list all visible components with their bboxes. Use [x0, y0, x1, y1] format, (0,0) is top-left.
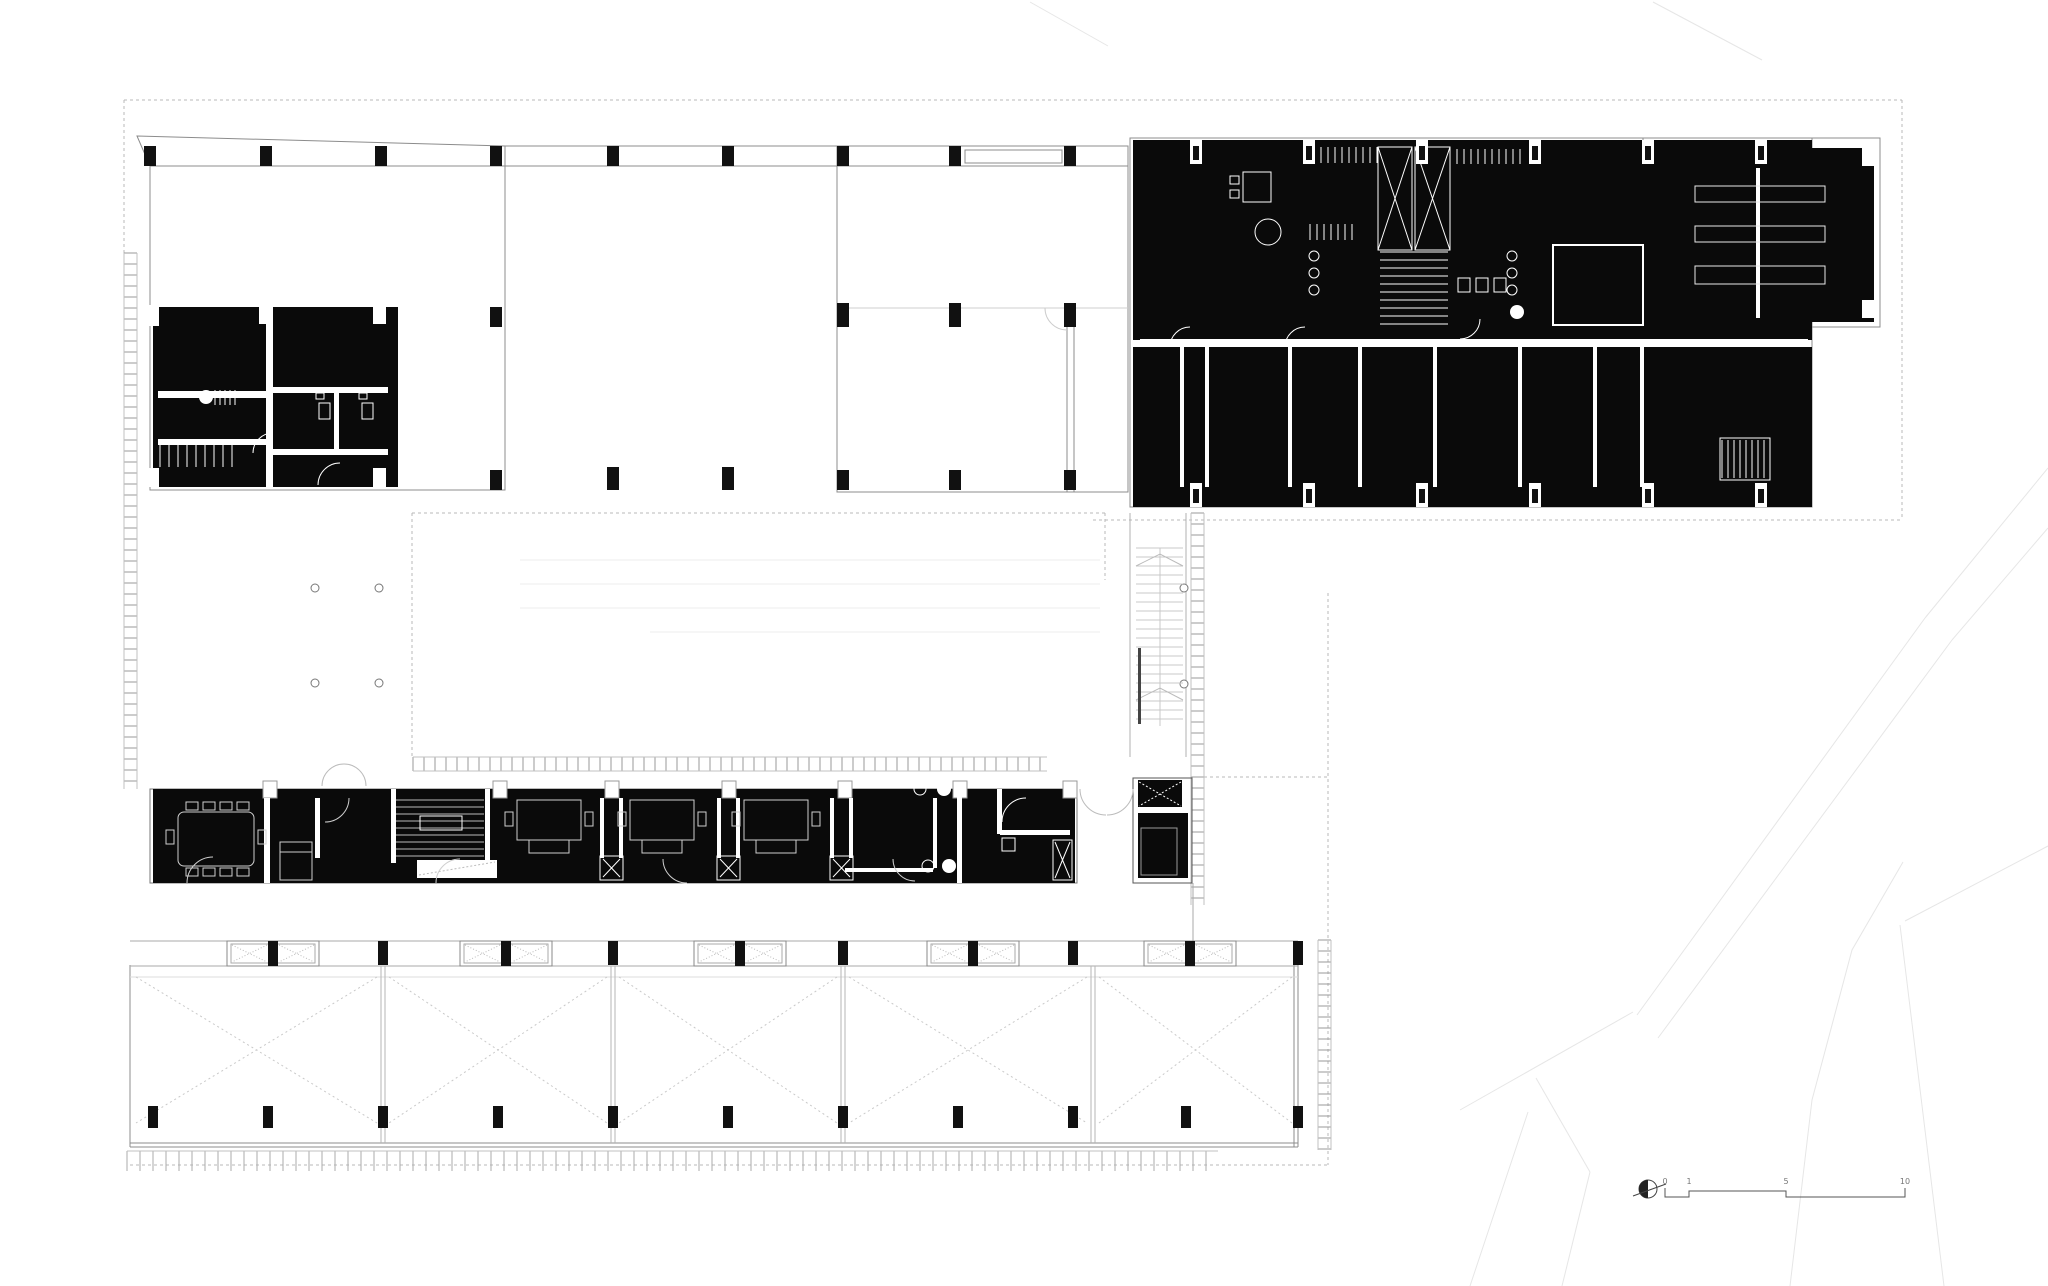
courtyard-shape	[1180, 680, 1188, 688]
columns-shape	[607, 467, 619, 490]
building-c-details-shape	[1193, 489, 1199, 503]
columns-shape	[1181, 1106, 1191, 1128]
columns-shape	[837, 470, 849, 490]
columns-shape	[608, 1106, 618, 1128]
band-details-shape	[830, 798, 834, 858]
columns-shape	[1068, 1106, 1078, 1128]
building-c-details-shape	[1306, 489, 1312, 503]
band-details-shape	[315, 798, 320, 858]
band-details-shape	[937, 782, 951, 796]
columns-shape	[490, 146, 502, 166]
building-c-details-shape	[1306, 146, 1312, 160]
columns-shape	[144, 146, 156, 166]
black-masses-shape	[1138, 813, 1188, 878]
columns-shape	[607, 146, 619, 166]
band-details-shape	[957, 789, 962, 883]
columns-shape	[953, 1106, 963, 1128]
columns-shape	[949, 303, 961, 327]
band-details-shape	[1063, 781, 1077, 798]
cluster-a-details-shape	[266, 307, 273, 487]
band-details-shape	[619, 798, 623, 858]
band-details-shape	[942, 859, 956, 873]
building-c-details-shape	[1433, 347, 1437, 487]
building-c-details-shape	[1593, 347, 1597, 487]
building-c-details-shape	[1645, 489, 1651, 503]
building-c-details-shape	[1640, 347, 1644, 487]
cluster-a-details-shape	[273, 449, 388, 455]
columns-shape	[837, 303, 849, 327]
courtyard-shape	[1138, 648, 1141, 724]
columns-shape	[837, 146, 849, 166]
scale-label-10: 10	[1900, 1177, 1910, 1186]
columns-shape	[1064, 470, 1076, 490]
columns-shape	[838, 941, 848, 965]
columns-shape	[722, 467, 734, 490]
scale-label-1: 1	[1686, 1177, 1691, 1186]
band-details-shape	[263, 781, 277, 798]
planters-shape	[968, 941, 978, 966]
building-c-details-shape	[1180, 347, 1184, 487]
columns-shape	[1068, 941, 1078, 965]
columns-shape	[1064, 303, 1076, 327]
building-c-details-shape	[1358, 347, 1362, 487]
band-details-shape	[417, 860, 497, 878]
black-masses-shape	[1812, 148, 1874, 322]
cluster-a-details-shape	[259, 305, 272, 324]
columns-shape	[838, 1106, 848, 1128]
cluster-a-details-shape	[158, 439, 266, 445]
cluster-a-details-shape	[334, 391, 339, 451]
columns-shape	[1293, 1106, 1303, 1128]
band-details-shape	[997, 789, 1002, 834]
band-details-shape	[493, 781, 507, 798]
planters-shape	[1185, 941, 1195, 966]
scale-label-0: 0	[1662, 1177, 1667, 1186]
band-details-shape	[485, 789, 490, 863]
cluster-a-details-shape	[146, 468, 159, 487]
band-details-shape	[264, 798, 270, 883]
columns-shape	[1293, 941, 1303, 965]
floor-plan-sheet: 0 1 5 10	[0, 0, 2048, 1286]
black-masses-shape	[1133, 347, 1812, 507]
floor-plan-drawing: 0 1 5 10	[0, 0, 2048, 1286]
cluster-a-details-shape	[273, 387, 388, 393]
columns-shape	[378, 1106, 388, 1128]
building-c-details-shape	[1288, 347, 1292, 487]
cluster-a-details-shape	[373, 468, 386, 487]
columns-shape	[490, 307, 502, 327]
building-c-details-shape	[1510, 305, 1524, 319]
building-c-details-shape	[1532, 146, 1538, 160]
cluster-a-details-shape	[146, 305, 159, 326]
band-details-shape	[600, 798, 604, 858]
building-c-details-shape	[1758, 489, 1764, 503]
courtyard-shape	[375, 679, 383, 687]
building-c-details-shape	[1140, 339, 1808, 347]
columns-shape	[490, 470, 502, 490]
band-details-shape	[933, 798, 937, 868]
band-details-shape	[391, 789, 396, 863]
building-c-details-shape	[1419, 146, 1425, 160]
band-details-shape	[605, 781, 619, 798]
band-details-shape	[849, 798, 853, 858]
columns-shape	[723, 1106, 733, 1128]
columns-shape	[375, 146, 387, 166]
building-c-details-shape	[1205, 347, 1209, 487]
courtyard-shape	[311, 584, 319, 592]
black-masses-shape	[1133, 140, 1812, 340]
building-c-details-shape	[1419, 489, 1425, 503]
planters-shape	[268, 941, 278, 966]
building-c-details-shape	[1756, 168, 1760, 318]
building-c-details-shape	[1645, 146, 1651, 160]
columns-shape	[260, 146, 272, 166]
courtyard-shape	[375, 584, 383, 592]
columns-shape	[608, 941, 618, 965]
columns-shape	[949, 146, 961, 166]
planters-shape	[501, 941, 511, 966]
columns-shape	[148, 1106, 158, 1128]
planters-shape	[735, 941, 745, 966]
building-c-details-shape	[1518, 347, 1522, 487]
band-details-shape	[838, 781, 852, 798]
courtyard-shape	[311, 679, 319, 687]
columns-shape	[949, 470, 961, 490]
building-c-details-shape	[1862, 300, 1874, 318]
columns-shape	[378, 941, 388, 965]
columns-shape	[263, 1106, 273, 1128]
cluster-a-details-shape	[373, 305, 386, 324]
columns-shape	[722, 146, 734, 166]
building-c-details-shape	[1532, 489, 1538, 503]
columns-shape	[493, 1106, 503, 1128]
columns-shape	[1064, 146, 1076, 166]
building-c-details-shape	[1862, 148, 1874, 166]
band-details-shape	[1000, 830, 1070, 835]
band-details-shape	[845, 868, 933, 872]
building-c-details-shape	[1193, 146, 1199, 160]
scale-label-5: 5	[1783, 1177, 1788, 1186]
cluster-a-details-shape	[199, 390, 213, 404]
band-details-shape	[722, 781, 736, 798]
building-c-details-shape	[1758, 146, 1764, 160]
courtyard-shape	[1180, 584, 1188, 592]
band-details-shape	[736, 798, 740, 858]
band-details-shape	[717, 798, 721, 858]
